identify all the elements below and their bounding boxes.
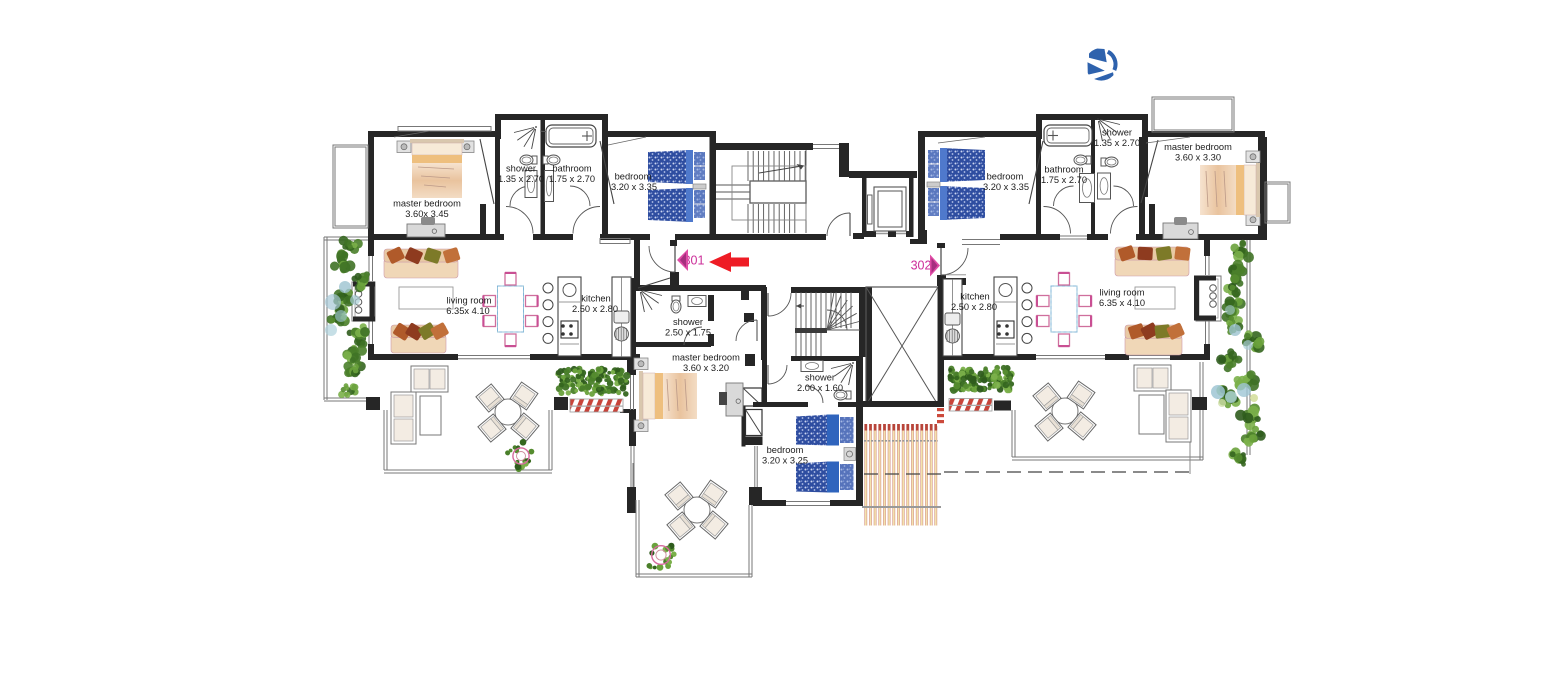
svg-text:1.35 x 2.70: 1.35 x 2.70 bbox=[498, 174, 544, 184]
svg-text:bathroom: bathroom bbox=[552, 164, 592, 174]
svg-text:1.75 x 2.70: 1.75 x 2.70 bbox=[549, 174, 595, 184]
svg-text:3.20 x 3.35: 3.20 x 3.35 bbox=[983, 182, 1029, 192]
svg-text:bedroom: bedroom bbox=[987, 172, 1024, 182]
svg-text:shower: shower bbox=[673, 317, 703, 327]
svg-text:master bedroom: master bedroom bbox=[672, 353, 740, 363]
svg-text:master bedroom: master bedroom bbox=[1164, 142, 1232, 152]
svg-text:master bedroom: master bedroom bbox=[393, 199, 461, 209]
svg-text:1.75 x 2.70: 1.75 x 2.70 bbox=[1041, 175, 1087, 185]
svg-text:shower: shower bbox=[506, 164, 536, 174]
svg-text:2.50 x 2.80: 2.50 x 2.80 bbox=[951, 302, 997, 312]
svg-text:living room: living room bbox=[1100, 288, 1145, 298]
svg-text:3.60x 3.45: 3.60x 3.45 bbox=[405, 209, 448, 219]
svg-text:6.35 x 4.10: 6.35 x 4.10 bbox=[1099, 298, 1145, 308]
svg-text:bathroom: bathroom bbox=[1044, 165, 1084, 175]
svg-text:1.35 x 2.70: 1.35 x 2.70 bbox=[1094, 138, 1140, 148]
svg-text:302: 302 bbox=[911, 259, 932, 273]
svg-text:3.60 x 3.20: 3.60 x 3.20 bbox=[683, 363, 729, 373]
svg-text:3.20 x 3.35: 3.20 x 3.35 bbox=[611, 182, 657, 192]
svg-text:bedroom: bedroom bbox=[615, 172, 652, 182]
svg-text:6.35x 4.10: 6.35x 4.10 bbox=[446, 306, 489, 316]
svg-text:2.50 x 2.80: 2.50 x 2.80 bbox=[572, 304, 618, 314]
svg-text:3.20 x 3.25: 3.20 x 3.25 bbox=[762, 456, 808, 466]
svg-text:2.50 x 1.75: 2.50 x 1.75 bbox=[665, 328, 711, 338]
svg-text:shower: shower bbox=[805, 373, 835, 383]
svg-text:2.00 x 1.60: 2.00 x 1.60 bbox=[797, 383, 843, 393]
svg-text:kitchen: kitchen bbox=[581, 294, 610, 304]
svg-text:living room: living room bbox=[447, 296, 492, 306]
svg-text:3.60 x 3.30: 3.60 x 3.30 bbox=[1175, 153, 1221, 163]
svg-text:shower: shower bbox=[1102, 128, 1132, 138]
svg-text:bedroom: bedroom bbox=[767, 445, 804, 455]
svg-text:kitchen: kitchen bbox=[960, 292, 989, 302]
